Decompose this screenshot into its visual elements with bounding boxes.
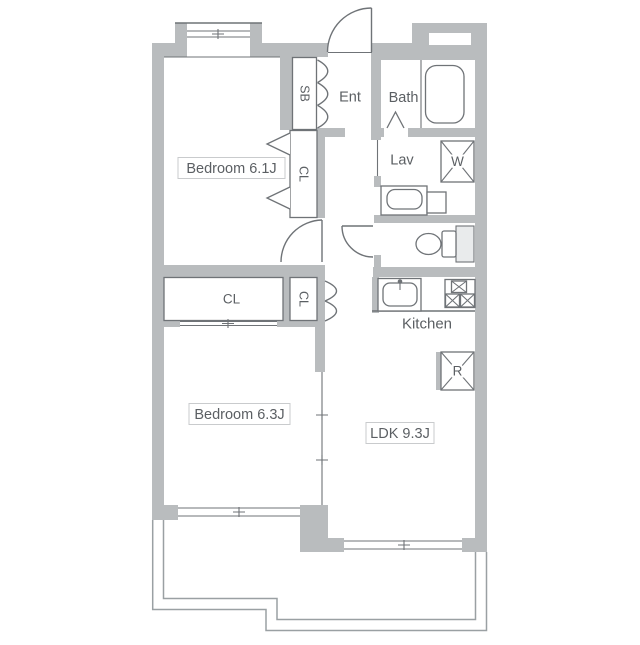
bedroom1-door bbox=[281, 220, 322, 262]
wall-bay-stub-left bbox=[175, 23, 187, 57]
wall-hall-stub bbox=[374, 176, 381, 187]
room-label-ent: Ent bbox=[339, 90, 361, 106]
floor-plan-svg: Bedroom 6.1J Bedroom 6.3J LDK 9.3J Kitch… bbox=[0, 0, 640, 640]
closet1-bifold-door-top bbox=[267, 133, 290, 155]
kitchen-sink bbox=[378, 279, 421, 312]
entrance-door-arc bbox=[328, 8, 372, 52]
wall-closet1-right bbox=[317, 130, 325, 218]
ldk-window bbox=[344, 538, 462, 552]
toilet-tank bbox=[442, 231, 456, 257]
room-label-lav: Lav bbox=[390, 153, 414, 169]
label-washing-machine: W bbox=[451, 154, 464, 169]
wall-bedroom1-right bbox=[280, 43, 292, 130]
wall-top-right bbox=[373, 43, 415, 60]
wall-closet2-right bbox=[317, 277, 325, 327]
bedroom1-door-arc bbox=[281, 220, 322, 262]
wall-lav-toilet-divider bbox=[374, 215, 475, 223]
bedroom2-window bbox=[178, 505, 300, 520]
wall-bath-lav-divider-l bbox=[371, 128, 384, 137]
wall-left bbox=[152, 43, 164, 520]
wall-top-mid bbox=[262, 43, 328, 57]
room-label-ldk: LDK 9.3J bbox=[370, 426, 430, 442]
bath-window-slot bbox=[429, 33, 471, 45]
toilet-counter bbox=[456, 226, 474, 262]
wall-ldk-window-left-stub bbox=[328, 538, 344, 552]
entrance-door bbox=[328, 8, 373, 53]
wall-bedroom2-bottom-left bbox=[152, 505, 178, 520]
wall-toilet-bottom bbox=[373, 267, 475, 277]
label-shoe-box: SB bbox=[298, 85, 312, 102]
closet2-bifold-doors bbox=[325, 281, 337, 321]
wall-bay-stub-right bbox=[250, 23, 262, 57]
label-closet-bedroom1: CL bbox=[297, 166, 311, 182]
floor-plan-page: Bedroom 6.1J Bedroom 6.3J LDK 9.3J Kitch… bbox=[0, 0, 640, 640]
washbasin bbox=[381, 186, 446, 215]
lavatory bbox=[378, 140, 475, 215]
toilet-room bbox=[342, 226, 474, 262]
kitchen-counter bbox=[372, 279, 475, 312]
room-partition bbox=[316, 372, 328, 505]
wall-bath-lav-divider-r bbox=[408, 128, 487, 137]
wall-bedroom2-bottom-corner bbox=[300, 505, 328, 552]
wall-right bbox=[475, 23, 487, 552]
label-refrigerator: R bbox=[453, 364, 463, 379]
stove bbox=[445, 280, 475, 308]
wall-top-left bbox=[152, 43, 177, 57]
label-closet-hall: CL bbox=[223, 292, 241, 307]
wall-ldk-window-right-stub bbox=[462, 538, 487, 552]
label-closet-hall-small: CL bbox=[297, 291, 311, 307]
wall-bedroom1-bottom bbox=[152, 265, 325, 277]
room-label-bath: Bath bbox=[389, 90, 419, 106]
room-label-bedroom1: Bedroom 6.1J bbox=[186, 161, 276, 177]
closet1-bifold-door-bottom bbox=[267, 187, 290, 209]
toilet-door-arc bbox=[342, 226, 373, 257]
shoe-box-trifold-doors bbox=[318, 60, 328, 128]
toilet-bowl bbox=[416, 234, 441, 255]
bath-folding-door bbox=[387, 112, 404, 128]
wall-partition-stub bbox=[315, 327, 325, 372]
bathtub bbox=[426, 66, 465, 124]
room-label-bedroom2: Bedroom 6.3J bbox=[194, 407, 284, 423]
wall-closet-divider bbox=[283, 277, 290, 327]
room-label-kitchen: Kitchen bbox=[402, 316, 452, 333]
